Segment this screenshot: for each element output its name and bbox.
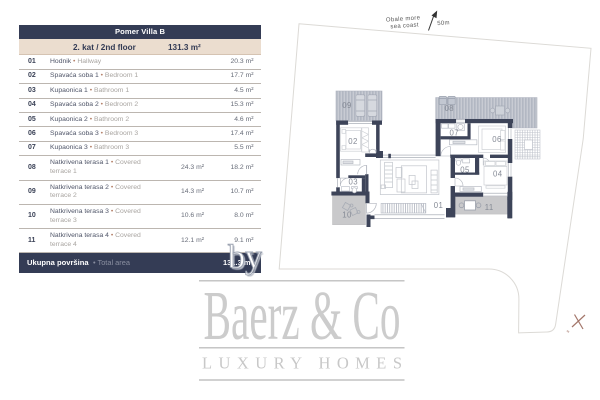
- svg-text:Baerz & Co: Baerz & Co: [204, 278, 401, 355]
- svg-text:LUXURY HOMES: LUXURY HOMES: [202, 354, 402, 373]
